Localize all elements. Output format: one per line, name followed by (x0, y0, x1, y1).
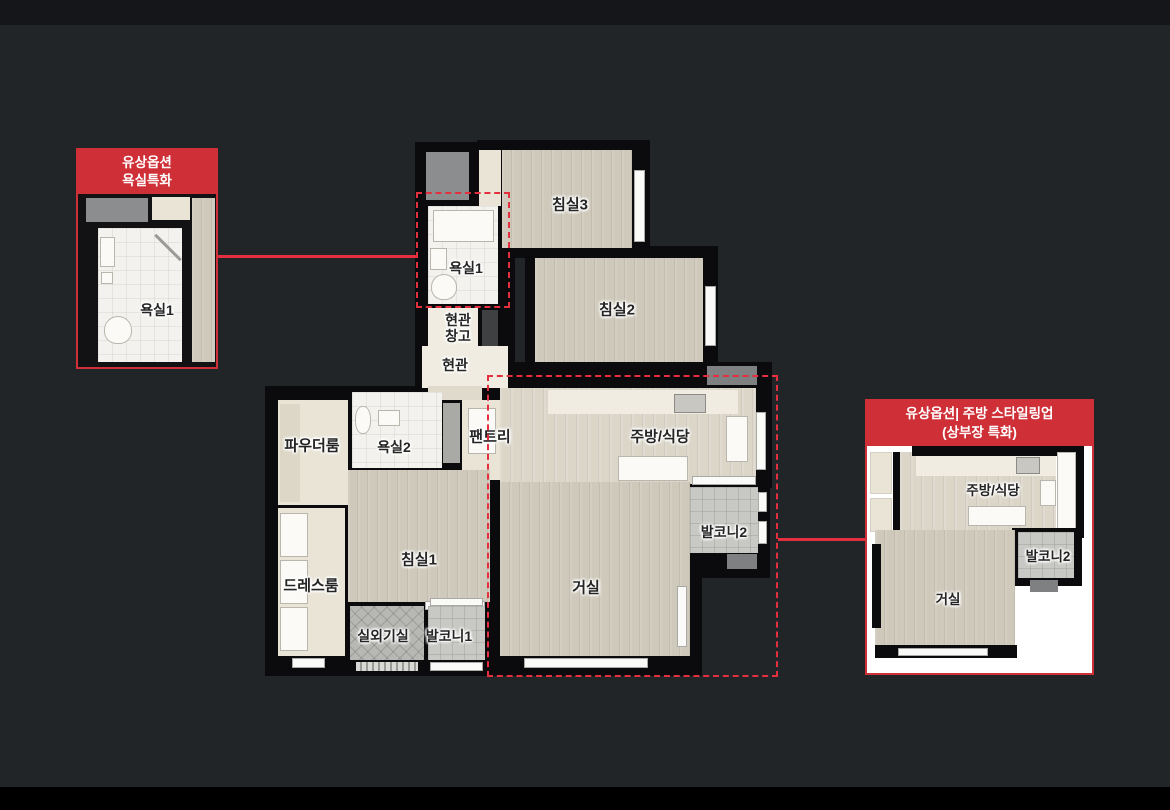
room-label-bathroom2: 욕실2 (377, 439, 411, 455)
bedroom1-floor (348, 470, 490, 602)
callout-bath-sink (100, 237, 115, 267)
callout-bath-hall-floor (192, 198, 215, 362)
callout-bath-toilet (104, 316, 132, 344)
balcony1-window-bottom (430, 662, 483, 671)
room-label-entrance: 현관 (442, 357, 468, 373)
top-letterbox-bar (0, 0, 1170, 25)
callout-balcony-label: 발코니2 (1026, 549, 1071, 565)
floor-plan-screen: 침실3 침실2 욕실1 현관 창고 현관 팬트리 주방/식당 발코니2 파우더룸… (0, 0, 1170, 810)
shoe-cabinet (482, 310, 498, 348)
callout-kitchen-sink (1040, 480, 1056, 506)
callout-bath-shelf (101, 272, 113, 284)
callout-kitchen-wall-top (912, 446, 1076, 456)
bottom-letterbox-bar (0, 787, 1170, 810)
bedroom2-window (705, 286, 716, 346)
callout-living-window (898, 648, 988, 656)
bathroom2-sink (378, 410, 400, 426)
callout-balcony-ac-unit (1030, 580, 1058, 592)
balcony1-window-top (430, 598, 483, 606)
bathroom-highlight-box (416, 192, 510, 308)
wardrobe-3 (280, 607, 308, 651)
callout-kitchen-island (968, 506, 1026, 526)
callout-living-wall-left (872, 544, 881, 628)
callout-stove (1016, 457, 1040, 474)
callout-kitchen-furniture-1 (870, 452, 892, 494)
callout-bath-cabinet (152, 197, 190, 220)
callout-tall-cabinets (1057, 452, 1076, 532)
dress-room-window (292, 658, 325, 668)
kitchen-connector-line (778, 538, 866, 541)
room-label-outdoor-unit: 실외기실 (357, 628, 409, 644)
room-label-bedroom3: 침실3 (552, 196, 588, 213)
room-label-powder-room: 파우더룸 (284, 437, 339, 454)
callout-kitchen-label: 주방/식당 (966, 483, 1019, 499)
callout-living-label: 거실 (936, 592, 961, 608)
bathroom-connector-line (218, 255, 416, 258)
room-label-balcony1: 발코니1 (426, 628, 472, 644)
bathroom2-toilet (355, 406, 371, 434)
room-label-entry-storage: 현관 창고 (445, 312, 471, 344)
wardrobe-1 (280, 513, 308, 557)
bathroom-option-title: 유상옵션 욕실특화 (78, 150, 216, 194)
room-label-dress-room: 드레스룸 (283, 577, 338, 594)
room-label-bedroom2: 침실2 (599, 301, 635, 318)
callout-bathroom-label: 욕실1 (140, 302, 174, 318)
room-label-bedroom1: 침실1 (401, 551, 437, 568)
callout-kitchen-furniture-2 (870, 498, 892, 532)
hallway-strip (443, 403, 460, 463)
kitchen-living-highlight-box (487, 375, 778, 677)
callout-kitchen-wall-left (893, 452, 900, 532)
callout-kitchen-wall-right (1076, 446, 1084, 538)
callout-bath-closet (86, 198, 148, 222)
bedroom3-window (634, 170, 645, 242)
kitchen-option-title: 유상옵션| 주방 스타일링업 (상부장 특화) (867, 401, 1092, 446)
outdoor-unit-louvre (356, 662, 418, 671)
